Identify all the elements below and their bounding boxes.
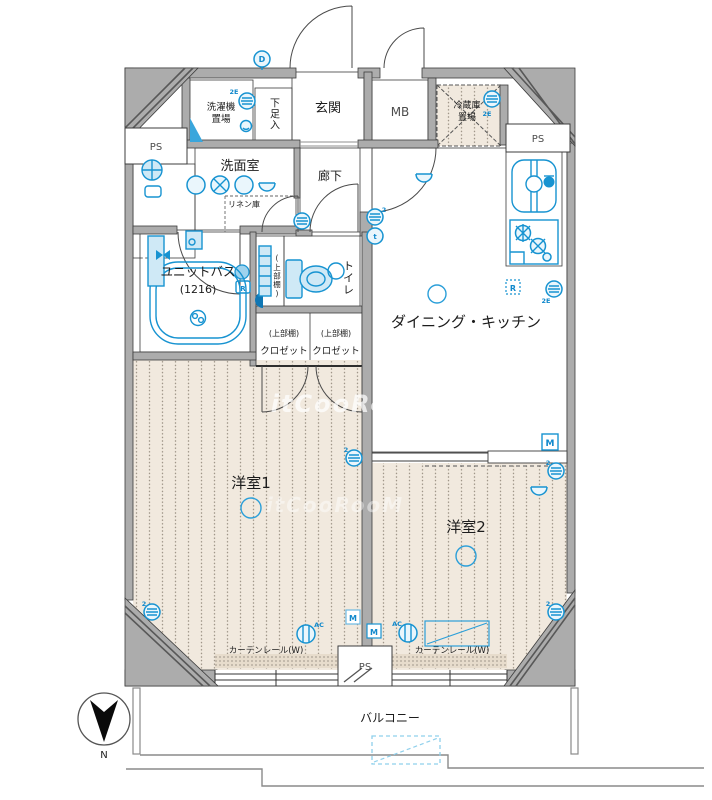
marker-r: R <box>510 284 516 293</box>
marker-2: 2 <box>344 446 349 454</box>
outlet-icon <box>546 281 562 297</box>
balcony-edge-outer <box>126 769 704 786</box>
label-upper-shelf-right: (上部棚) <box>321 328 351 338</box>
label-washing-machine-2: 置場 <box>211 113 231 125</box>
marker-2: 2 <box>142 600 147 608</box>
outlet-icon <box>548 463 564 479</box>
bath-door-knob-icon <box>235 265 249 279</box>
marker-2: 2 <box>546 600 551 608</box>
label-shoe-box: 下足入 <box>268 98 280 131</box>
bathtub-drain-icon <box>191 311 206 326</box>
closet-area <box>256 312 362 366</box>
label-upper-shelf-left: (上部棚) <box>269 328 299 338</box>
label-compass-north: N <box>100 750 107 761</box>
outlet-icon <box>484 91 500 107</box>
washroom-fixture-icons <box>187 176 275 194</box>
watermark-2: itCooRooM <box>266 493 404 517</box>
outlet-icon <box>241 121 252 132</box>
toilet-bowl <box>300 266 332 292</box>
marker-ac: AC <box>314 621 324 629</box>
label-washing-machine: 洗濯機 <box>207 101 236 113</box>
stove <box>510 220 558 264</box>
floors <box>133 72 567 670</box>
marker-2e: 2E <box>542 297 551 305</box>
marker-r: R <box>240 285 246 293</box>
ceiling-light-dk-icon <box>428 285 446 303</box>
partition-opening <box>372 453 488 461</box>
kitchen-sink <box>512 160 556 212</box>
label-curtain-rail-left: カーテンレール(W) <box>229 646 304 656</box>
toilet-door-arc <box>310 184 358 232</box>
marker-2e: 2E <box>483 110 492 118</box>
label-washroom: 洗面室 <box>220 158 259 174</box>
balcony-rail-left <box>133 688 140 754</box>
label-unit-bath: ユニットバス <box>160 264 235 279</box>
label-unit-bath-size: (1216) <box>180 283 217 296</box>
label-room1: 洋室1 <box>231 474 271 492</box>
marker-m: M <box>546 439 555 449</box>
label-curtain-rail-right: カーテンレール(W) <box>415 646 490 656</box>
label-fridge-2: 置場 <box>458 111 476 123</box>
cabinet-shelf-icon <box>259 246 271 296</box>
outlet-icon <box>548 604 564 620</box>
label-ps-left: PS <box>150 142 162 153</box>
marker-m: M <box>370 628 378 637</box>
outlet-icon <box>239 93 255 109</box>
compass-icon <box>78 693 130 745</box>
marker-2e: 2E <box>230 88 239 96</box>
outlet-icon <box>144 604 160 620</box>
balcony <box>126 688 704 786</box>
watermark: itCooRooM <box>271 390 433 418</box>
ac-outlet-icon <box>297 625 315 643</box>
floorplan-page: 洗濯機 置場 下足入 玄関 MB 冷蔵庫 置場 PS PS PS 洗面室 リネン… <box>0 0 712 800</box>
label-ps-bottom: PS <box>359 662 371 673</box>
label-mb: MB <box>391 105 410 119</box>
vanity-appliance-icon <box>145 186 161 197</box>
partition-wall <box>488 451 567 463</box>
label-ps-top-right: PS <box>532 134 544 145</box>
label-room2: 洋室2 <box>446 518 486 536</box>
washer-door-wedge <box>190 118 203 142</box>
entrance-door-arc <box>290 6 352 68</box>
mb-door-arc <box>384 28 424 68</box>
label-entrance: 玄関 <box>315 101 341 116</box>
marker-ac: AC <box>392 620 402 628</box>
washbasin-icon <box>142 160 162 180</box>
balcony-edge-inner <box>140 755 704 768</box>
entrance-step <box>300 142 358 146</box>
vanity-drain-box-icon <box>186 231 202 249</box>
marker-2: 2 <box>546 459 551 467</box>
outlet-icon <box>346 450 362 466</box>
balcony-rail-right <box>571 688 578 754</box>
marker-m: M <box>349 614 357 623</box>
outlet-icon <box>294 213 310 229</box>
marker-2: 2 <box>382 206 387 214</box>
tv-outlet-icon <box>416 174 432 182</box>
label-hallway: 廊下 <box>318 168 342 183</box>
label-dining-kitchen: ダイニング・キッチン <box>391 313 541 331</box>
label-closet-left: クロゼット <box>260 345 308 357</box>
outlet-icon <box>367 209 383 225</box>
label-upper-shelf-cabinet: (上部棚) <box>272 253 281 299</box>
floorplan-drawing: 洗濯機 置場 下足入 玄関 MB 冷蔵庫 置場 PS PS PS 洗面室 リネン… <box>0 0 712 800</box>
label-toilet: トイレ <box>342 260 355 296</box>
label-balcony: バルコニー <box>360 711 420 725</box>
marker-intercom: D <box>259 55 266 64</box>
label-fridge: 冷蔵庫 <box>453 99 480 111</box>
evacuation-hatch <box>372 736 440 764</box>
label-linen: リネン庫 <box>228 199 260 209</box>
label-closet-right: クロゼット <box>312 345 360 357</box>
